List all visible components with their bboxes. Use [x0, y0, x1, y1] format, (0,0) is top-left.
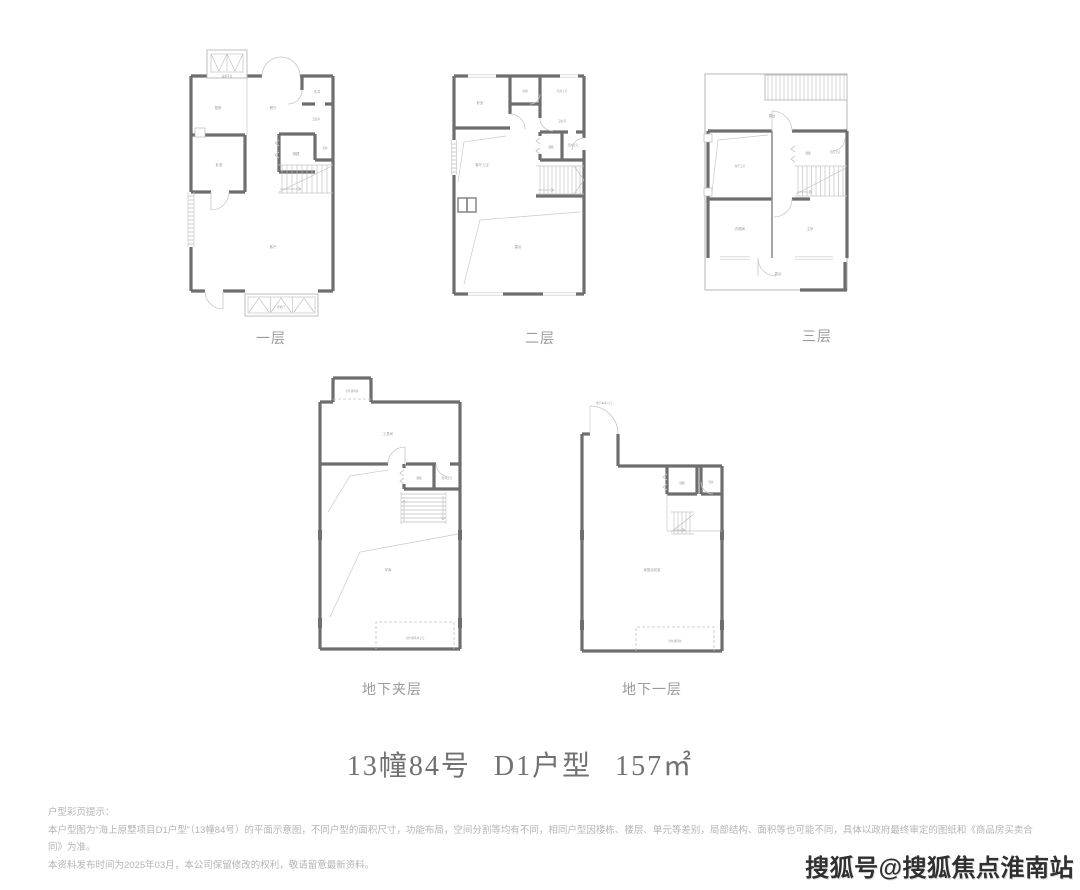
room-label: 客厅	[270, 244, 277, 249]
floor-plan-level-1: 设备平台 折叠门 厨房 餐厅 天井 卫生间 储藏 天井 卧室 客厅	[183, 42, 335, 327]
floor-plan-level-3: 露台 客厅上空 储藏 天井上空 衣帽间 主卧 露台	[700, 66, 852, 294]
room-label: 家庭活动室	[644, 567, 662, 572]
room-labels: 地下车库入口 储藏 管井 家庭活动室 室外通风井	[596, 401, 714, 643]
room-label: 天井上空	[557, 89, 568, 93]
room-label: 衣帽间	[735, 226, 746, 231]
floor-caption-level-2: 二层	[525, 328, 555, 348]
folding-window: 折叠门	[245, 294, 318, 316]
doors	[590, 406, 713, 494]
room-label: 工具间	[383, 431, 394, 436]
room-label: 卫生间	[558, 119, 566, 123]
doors	[205, 57, 302, 309]
room-label: 客厅上空	[735, 164, 746, 168]
stairs	[401, 492, 446, 524]
room-label: 露台	[769, 113, 776, 118]
room-label: 车库	[385, 567, 392, 572]
stairs	[536, 166, 584, 194]
room-label: 室外通风井	[345, 389, 359, 393]
room-label: 地下车库入口	[596, 401, 612, 405]
room-label: 天井上空	[568, 143, 579, 147]
thin-lines	[704, 134, 833, 259]
room-label: 卫生间	[312, 117, 320, 121]
pergola	[765, 75, 847, 100]
room-label: 储藏	[679, 481, 685, 485]
room-label: 餐厅	[270, 105, 277, 110]
room-label: 主卧	[807, 226, 814, 231]
thin-lines	[328, 399, 458, 649]
room-label: 折叠门	[277, 305, 285, 309]
room-label: 客厅上空	[475, 162, 489, 167]
room-labels: 卧室 衣帽 天井上空 卫生间 客厅上空 储藏 天井上空 露台	[475, 89, 578, 249]
doors	[758, 111, 845, 276]
floor-caption-level-3: 三层	[802, 326, 832, 346]
room-label: 室外通风井上空	[406, 636, 425, 640]
walls	[318, 378, 462, 649]
walls	[580, 434, 724, 651]
floor-caption-level-1: 一层	[256, 328, 286, 348]
room-label: 管井	[708, 480, 714, 484]
room-label: 储藏	[293, 151, 300, 156]
room-labels: 室外通风井 工具间 储藏 管井上空 车库 室外通风井上空	[345, 389, 452, 640]
room-label: 露台	[775, 271, 782, 276]
floor-plan-basement-1: 地下车库入口 储藏 管井 家庭活动室 室外通风井	[574, 394, 724, 656]
floor-caption-basement-mezzanine: 地下夹层	[362, 679, 422, 699]
floor-plan-level-2: 卧室 衣帽 天井上空 卫生间 客厅上空 储藏 天井上空 露台	[448, 70, 588, 300]
room-label: 储藏	[805, 151, 811, 155]
room-label: 储藏	[548, 145, 554, 149]
disclaimer-heading: 户型彩页提示：	[48, 804, 1038, 822]
thin-lines	[452, 75, 581, 295]
stairs	[795, 166, 847, 196]
watermark: 搜狐号@搜狐焦点淮南站	[805, 848, 1074, 883]
thin-lines	[188, 76, 247, 247]
room-label: 天井上空	[830, 150, 841, 154]
parapet	[705, 74, 847, 290]
room-label: 储藏	[416, 476, 422, 480]
floor-plan-basement-mezzanine: 室外通风井 工具间 储藏 管井上空 车库 室外通风井上空	[316, 372, 464, 652]
room-label: 管井上空	[442, 476, 453, 480]
room-label: 室外通风井	[668, 639, 682, 643]
equipment-platform: 设备平台	[207, 50, 247, 78]
unit-title: 13幢84号 D1户型 157㎡	[347, 744, 693, 784]
floor-caption-basement-1: 地下一层	[622, 679, 682, 699]
room-label: 衣帽	[522, 89, 528, 93]
room-label: 厨房	[215, 105, 222, 110]
walls	[708, 131, 847, 258]
room-label: 卧室	[477, 100, 484, 105]
room-labels: 厨房 餐厅 天井 卫生间 储藏 天井 卧室 客厅	[215, 89, 328, 249]
room-label: 天井	[314, 89, 321, 94]
room-label: 露台	[515, 244, 522, 249]
stairs	[278, 165, 333, 193]
walls	[454, 76, 584, 294]
room-label: 天井	[322, 146, 328, 150]
thin-lines	[590, 406, 722, 651]
room-label: 卧室	[216, 162, 223, 167]
room-label: 设备平台	[222, 74, 233, 78]
